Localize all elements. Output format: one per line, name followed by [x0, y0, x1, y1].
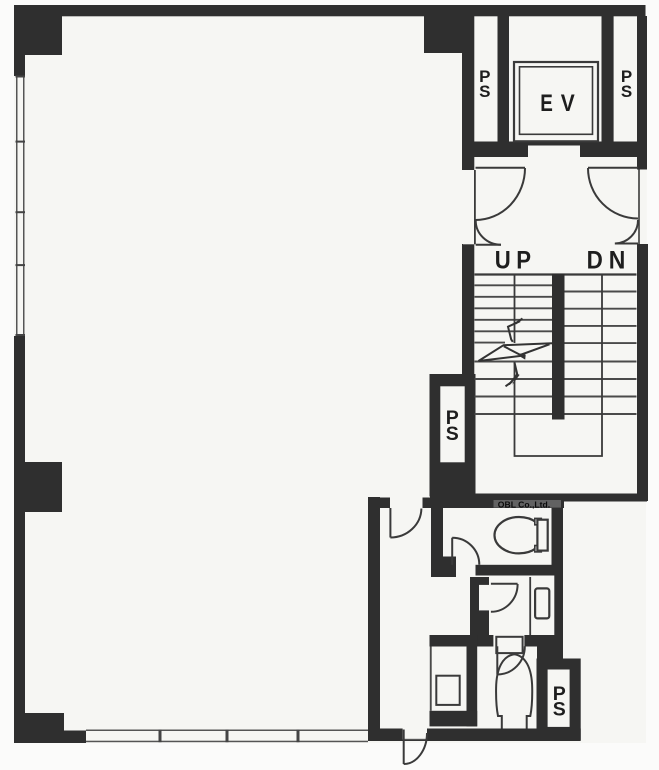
- svg-text:S: S: [553, 699, 566, 721]
- svg-text:S: S: [479, 82, 490, 101]
- svg-text:U: U: [495, 247, 511, 275]
- svg-text:OBL Co.,Ltd.: OBL Co.,Ltd.: [498, 499, 550, 509]
- svg-text:S: S: [621, 82, 632, 101]
- svg-text:S: S: [446, 423, 459, 445]
- svg-text:E: E: [540, 90, 553, 117]
- svg-text:V: V: [561, 90, 575, 117]
- svg-text:D: D: [587, 247, 603, 275]
- svg-text:N: N: [609, 247, 626, 275]
- svg-text:P: P: [516, 247, 531, 275]
